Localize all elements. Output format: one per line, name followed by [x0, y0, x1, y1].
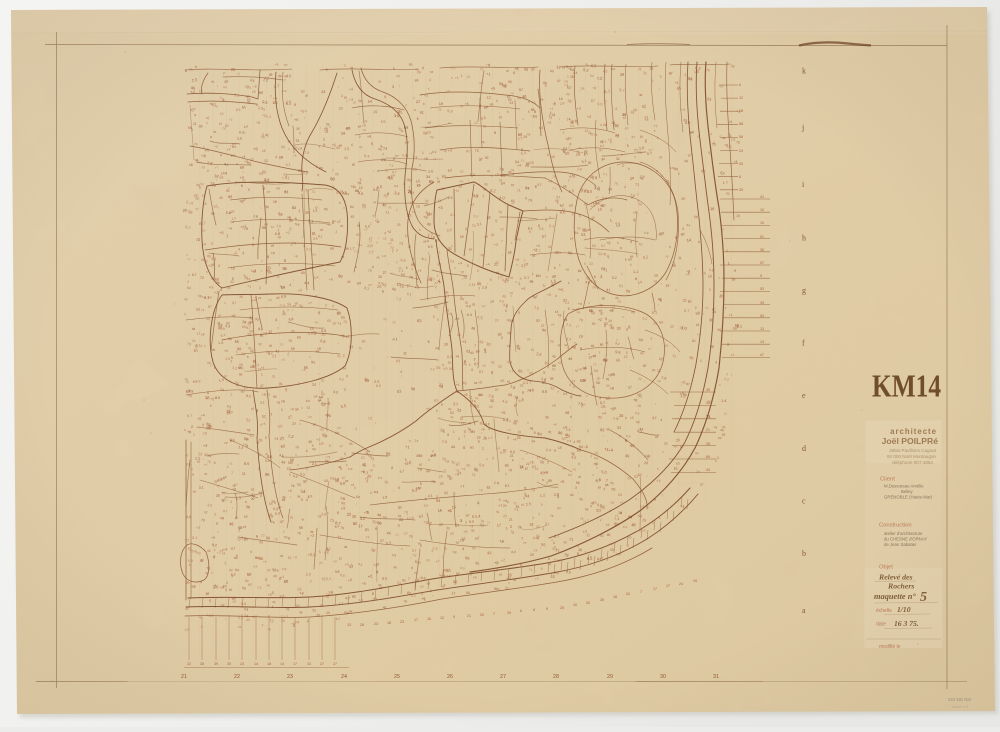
svg-text:4: 4 — [630, 240, 632, 244]
svg-text:47: 47 — [760, 353, 764, 357]
svg-text:17: 17 — [293, 662, 297, 666]
svg-text:14: 14 — [435, 346, 439, 350]
svg-text:3.2: 3.2 — [232, 366, 238, 371]
svg-text:6: 6 — [739, 83, 741, 87]
svg-text:23: 23 — [287, 674, 293, 680]
svg-text:+9: +9 — [494, 560, 499, 565]
svg-text:+6: +6 — [262, 393, 267, 397]
svg-text:12: 12 — [486, 95, 491, 100]
svg-text:36: 36 — [296, 127, 300, 131]
svg-text:36: 36 — [457, 333, 461, 337]
svg-text:41: 41 — [266, 264, 271, 270]
svg-text:70: 70 — [480, 519, 485, 524]
svg-text:9.7: 9.7 — [336, 617, 341, 621]
svg-text:88: 88 — [244, 515, 248, 519]
svg-text:53: 53 — [581, 232, 585, 237]
svg-text:1.0: 1.0 — [587, 190, 592, 194]
svg-text:+4: +4 — [594, 133, 598, 137]
svg-text:53: 53 — [760, 287, 764, 291]
svg-text:66: 66 — [407, 178, 412, 182]
svg-text:Construction: Construction — [879, 523, 912, 529]
svg-text:15: 15 — [316, 613, 320, 618]
svg-text:17: 17 — [358, 523, 363, 529]
svg-text:93: 93 — [344, 156, 348, 160]
svg-text:Belley: Belley — [901, 489, 914, 494]
svg-text:92: 92 — [485, 156, 489, 160]
svg-text:55: 55 — [477, 282, 481, 286]
svg-text:47: 47 — [280, 520, 284, 524]
svg-text:22: 22 — [234, 674, 240, 680]
svg-text:47: 47 — [382, 203, 387, 208]
svg-text:49: 49 — [479, 339, 484, 344]
svg-text:76: 76 — [517, 525, 522, 530]
svg-text:+4: +4 — [517, 163, 522, 168]
svg-text:95: 95 — [564, 343, 568, 347]
svg-text:16: 16 — [507, 344, 511, 348]
svg-text:+5: +5 — [287, 140, 291, 144]
svg-text:74: 74 — [514, 396, 519, 400]
svg-text:4: 4 — [343, 497, 345, 501]
svg-text:83: 83 — [555, 571, 559, 575]
svg-text:+6: +6 — [424, 157, 428, 161]
svg-text:2.7: 2.7 — [453, 402, 458, 407]
svg-text:19: 19 — [271, 251, 275, 255]
svg-text:+7: +7 — [185, 454, 189, 458]
svg-text:3.7: 3.7 — [537, 183, 542, 187]
svg-text:+1: +1 — [247, 277, 251, 281]
svg-text:3.4: 3.4 — [503, 303, 508, 307]
svg-text:22: 22 — [367, 244, 371, 248]
svg-text:60: 60 — [566, 92, 570, 96]
svg-text:M.Dessureau Amélie: M.Dessureau Amélie — [884, 484, 924, 489]
svg-text:65: 65 — [460, 235, 464, 239]
svg-text:27: 27 — [231, 210, 235, 214]
svg-text:+5: +5 — [288, 489, 292, 493]
svg-text:+9: +9 — [562, 467, 566, 471]
svg-text:de Jean Sabatier: de Jean Sabatier — [884, 542, 917, 547]
svg-text:+4: +4 — [485, 262, 490, 267]
svg-text:+3: +3 — [696, 332, 701, 337]
svg-text:46: 46 — [462, 380, 467, 386]
svg-text:66: 66 — [259, 172, 263, 176]
svg-text:79: 79 — [552, 175, 556, 179]
svg-text:72: 72 — [642, 529, 646, 533]
svg-text:58: 58 — [530, 161, 534, 165]
svg-text:20: 20 — [251, 497, 255, 501]
svg-text:3.3: 3.3 — [225, 324, 230, 329]
svg-text:+2: +2 — [609, 542, 613, 546]
svg-text:8.8: 8.8 — [306, 399, 311, 403]
svg-text:89: 89 — [548, 479, 552, 483]
svg-text:16: 16 — [570, 75, 574, 79]
svg-text:28: 28 — [553, 674, 559, 680]
svg-text:+8: +8 — [215, 479, 219, 483]
svg-text:+2: +2 — [216, 484, 220, 488]
svg-text:4: 4 — [230, 500, 232, 504]
svg-text:42: 42 — [359, 145, 363, 149]
svg-text:5.2: 5.2 — [597, 503, 602, 507]
svg-text:8.7: 8.7 — [647, 151, 652, 156]
svg-text:34: 34 — [205, 571, 209, 575]
svg-text:3: 3 — [726, 249, 728, 253]
svg-text:22: 22 — [655, 435, 659, 439]
svg-text:26: 26 — [305, 211, 310, 215]
svg-text:19: 19 — [373, 110, 378, 114]
svg-text:53: 53 — [638, 514, 642, 518]
svg-text:+5: +5 — [559, 287, 564, 292]
svg-text:70: 70 — [211, 80, 215, 84]
svg-text:1.8: 1.8 — [334, 477, 339, 481]
svg-text:43: 43 — [336, 146, 340, 150]
svg-text:8.5: 8.5 — [428, 245, 433, 249]
svg-text:84: 84 — [574, 231, 579, 235]
svg-text:30: 30 — [664, 442, 668, 446]
svg-text:47: 47 — [631, 135, 636, 140]
svg-text:+4: +4 — [521, 287, 526, 291]
svg-text:93: 93 — [297, 335, 302, 340]
svg-text:4.4: 4.4 — [304, 281, 310, 285]
svg-text:5.5: 5.5 — [381, 120, 386, 124]
svg-text:66: 66 — [605, 483, 609, 487]
svg-text:+5: +5 — [362, 582, 366, 586]
svg-text:71: 71 — [370, 456, 375, 461]
svg-text:43: 43 — [246, 618, 250, 622]
svg-text:12: 12 — [474, 121, 478, 125]
svg-text:+2: +2 — [232, 600, 236, 604]
svg-text:+7: +7 — [424, 94, 429, 98]
svg-text:9.1: 9.1 — [505, 483, 510, 488]
svg-text:79: 79 — [368, 269, 372, 273]
svg-text:5.3: 5.3 — [411, 594, 416, 598]
svg-text:47: 47 — [250, 158, 254, 162]
svg-text:15: 15 — [252, 90, 256, 94]
svg-text:84: 84 — [628, 515, 633, 520]
svg-text:4: 4 — [400, 370, 402, 374]
svg-text:83: 83 — [292, 206, 296, 210]
svg-text:34: 34 — [192, 327, 196, 331]
svg-text:2.1: 2.1 — [603, 172, 608, 176]
svg-text:86: 86 — [626, 289, 631, 294]
svg-text:7: 7 — [640, 590, 642, 594]
svg-text:18: 18 — [707, 274, 712, 279]
svg-text:9: 9 — [605, 317, 607, 321]
svg-text:6.7: 6.7 — [192, 273, 197, 277]
svg-text:72: 72 — [382, 283, 387, 288]
svg-text:60: 60 — [301, 271, 305, 275]
svg-text:68: 68 — [601, 267, 605, 271]
svg-text:9.6: 9.6 — [258, 327, 263, 331]
svg-text:37: 37 — [557, 79, 561, 83]
svg-text:2.9: 2.9 — [282, 89, 287, 93]
svg-text:97: 97 — [687, 153, 692, 158]
svg-text:8.1: 8.1 — [652, 310, 658, 315]
svg-text:78: 78 — [404, 510, 409, 515]
svg-text:35: 35 — [398, 127, 402, 131]
svg-text:3.5: 3.5 — [237, 136, 243, 141]
svg-text:43: 43 — [706, 468, 710, 472]
svg-text:3: 3 — [599, 396, 601, 400]
svg-text:48: 48 — [565, 411, 569, 415]
svg-text:49: 49 — [326, 611, 330, 615]
svg-text:18: 18 — [611, 121, 615, 125]
svg-text:+5: +5 — [213, 584, 217, 588]
svg-text:27: 27 — [500, 674, 506, 680]
svg-text:52: 52 — [641, 103, 646, 109]
svg-text:5.0: 5.0 — [479, 463, 485, 468]
svg-text:13: 13 — [696, 323, 700, 327]
svg-text:4.5: 4.5 — [267, 454, 273, 459]
svg-text:57: 57 — [465, 513, 470, 518]
svg-text:+7: +7 — [470, 203, 474, 207]
svg-text:9.6: 9.6 — [421, 576, 426, 580]
svg-text:49: 49 — [414, 571, 418, 575]
svg-text:1.2: 1.2 — [680, 393, 686, 398]
svg-text:4: 4 — [244, 224, 246, 228]
svg-text:61: 61 — [365, 528, 369, 532]
svg-text:21: 21 — [480, 67, 484, 71]
svg-text:14: 14 — [254, 662, 258, 666]
svg-text:35: 35 — [615, 124, 619, 128]
svg-text:34: 34 — [617, 426, 621, 430]
svg-text:43: 43 — [349, 564, 354, 569]
svg-text:10: 10 — [578, 548, 582, 552]
svg-text:2.5: 2.5 — [566, 570, 571, 574]
svg-text:1.1: 1.1 — [393, 337, 398, 341]
svg-text:19: 19 — [736, 214, 740, 218]
svg-text:48: 48 — [516, 344, 520, 348]
svg-text:+1: +1 — [326, 222, 330, 226]
svg-text:93: 93 — [430, 70, 434, 74]
svg-text:2.9: 2.9 — [305, 572, 311, 577]
svg-text:+1: +1 — [705, 306, 709, 310]
svg-text:1: 1 — [222, 98, 224, 102]
svg-text:3.6: 3.6 — [428, 169, 434, 174]
svg-text:22: 22 — [457, 408, 462, 413]
svg-text:+3: +3 — [557, 343, 561, 347]
svg-text:+1: +1 — [605, 341, 609, 345]
svg-text:2.1: 2.1 — [308, 219, 314, 224]
svg-text:88: 88 — [455, 523, 460, 528]
svg-text:29: 29 — [607, 674, 613, 680]
svg-text:9.4: 9.4 — [394, 184, 399, 188]
svg-text:59: 59 — [344, 611, 349, 616]
svg-text:97: 97 — [449, 477, 453, 481]
svg-text:6: 6 — [548, 557, 550, 561]
svg-text:42: 42 — [498, 364, 503, 369]
svg-text:36: 36 — [239, 295, 243, 299]
svg-text:+2: +2 — [412, 210, 416, 214]
svg-text:20: 20 — [219, 196, 223, 200]
svg-text:20: 20 — [291, 329, 295, 333]
svg-text:1.7: 1.7 — [445, 294, 450, 299]
svg-text:38: 38 — [706, 442, 710, 446]
svg-text:+9: +9 — [508, 468, 512, 472]
svg-text:81: 81 — [479, 370, 483, 374]
svg-text:1.1: 1.1 — [633, 270, 638, 274]
svg-text:81: 81 — [522, 94, 527, 99]
svg-text:67: 67 — [675, 236, 679, 240]
svg-text:86: 86 — [228, 195, 233, 199]
svg-text:51: 51 — [619, 284, 623, 288]
svg-text:30: 30 — [660, 674, 666, 680]
svg-text:5.9: 5.9 — [241, 602, 246, 606]
svg-text:18: 18 — [517, 430, 522, 435]
svg-text:8.7: 8.7 — [223, 509, 228, 513]
svg-text:33: 33 — [280, 554, 284, 558]
svg-text:+1: +1 — [620, 501, 624, 505]
svg-text:17: 17 — [557, 558, 562, 563]
svg-text:+4: +4 — [515, 258, 519, 262]
svg-text:9.8: 9.8 — [709, 268, 714, 272]
svg-text:79: 79 — [418, 468, 422, 472]
svg-text:+1: +1 — [358, 346, 362, 350]
svg-text:GRENOBLE (Haute-Mar): GRENOBLE (Haute-Mar) — [884, 495, 933, 500]
svg-text:77: 77 — [185, 539, 190, 543]
svg-text:94: 94 — [325, 459, 329, 463]
svg-text:+6: +6 — [443, 568, 448, 572]
svg-text:83: 83 — [591, 344, 595, 348]
svg-text:2.5: 2.5 — [448, 196, 453, 200]
svg-text:1.5: 1.5 — [539, 126, 544, 130]
svg-text:1.7: 1.7 — [488, 436, 493, 440]
svg-text:12: 12 — [258, 342, 262, 346]
svg-text:+2: +2 — [387, 230, 391, 234]
svg-text:80: 80 — [474, 467, 478, 471]
svg-text:92 000 Noël Montaugon: 92 000 Noël Montaugon — [887, 454, 936, 459]
svg-text:+4: +4 — [418, 269, 422, 273]
svg-text:1.7: 1.7 — [339, 601, 344, 606]
svg-text:15: 15 — [597, 207, 602, 212]
svg-text:+8: +8 — [187, 430, 191, 434]
svg-text:+7: +7 — [364, 228, 368, 232]
svg-text:42: 42 — [474, 404, 479, 409]
svg-text:29: 29 — [490, 300, 494, 304]
svg-text:Relevé des: Relevé des — [878, 573, 913, 582]
svg-text:8: 8 — [557, 494, 559, 499]
svg-text:94: 94 — [628, 258, 632, 262]
svg-text:83: 83 — [570, 493, 574, 497]
svg-text:+3: +3 — [532, 295, 537, 300]
svg-text:12: 12 — [556, 65, 561, 70]
svg-text:16: 16 — [427, 617, 431, 621]
svg-text:83: 83 — [618, 493, 622, 497]
svg-text:1: 1 — [335, 230, 337, 234]
svg-text:16: 16 — [438, 509, 442, 513]
svg-text:56: 56 — [358, 99, 362, 103]
svg-text:51: 51 — [760, 235, 764, 239]
svg-text:+2: +2 — [479, 81, 483, 85]
svg-text:8.6: 8.6 — [645, 454, 650, 458]
svg-text:71: 71 — [672, 354, 677, 359]
svg-text:71: 71 — [276, 275, 280, 279]
svg-text:32: 32 — [616, 157, 620, 161]
svg-text:93: 93 — [397, 581, 402, 586]
svg-text:55: 55 — [408, 62, 413, 67]
svg-text:32: 32 — [487, 215, 491, 220]
svg-text:78: 78 — [530, 460, 535, 465]
svg-text:16: 16 — [359, 186, 363, 190]
svg-text:9.7: 9.7 — [619, 87, 625, 93]
svg-text:7: 7 — [645, 139, 647, 143]
svg-text:+4: +4 — [587, 115, 591, 119]
svg-text:+3: +3 — [196, 526, 200, 530]
svg-text:96: 96 — [444, 491, 449, 495]
svg-text:du CHESNE d'ORNAY: du CHESNE d'ORNAY — [884, 537, 927, 542]
svg-text:+3: +3 — [395, 533, 399, 537]
svg-text:22: 22 — [187, 662, 191, 666]
svg-text:4: 4 — [577, 150, 579, 154]
svg-text:+4: +4 — [448, 149, 452, 153]
svg-text:9.5: 9.5 — [262, 99, 268, 105]
svg-text:1: 1 — [458, 437, 460, 441]
svg-text:1: 1 — [281, 408, 283, 412]
svg-text:+4: +4 — [309, 266, 313, 270]
svg-text:18: 18 — [710, 206, 715, 211]
svg-text:50: 50 — [540, 460, 545, 465]
svg-text:64: 64 — [689, 130, 694, 135]
svg-text:86: 86 — [558, 430, 563, 435]
svg-text:+1: +1 — [590, 217, 595, 222]
svg-text:2.7: 2.7 — [342, 191, 347, 195]
svg-text:20: 20 — [503, 504, 507, 508]
svg-text:9: 9 — [212, 262, 214, 267]
svg-text:16 3 75.: 16 3 75. — [894, 619, 919, 628]
svg-text:72: 72 — [201, 258, 205, 262]
svg-text:+2: +2 — [460, 270, 464, 274]
svg-text:3.1: 3.1 — [192, 535, 198, 540]
svg-text:9: 9 — [625, 438, 627, 443]
svg-text:84: 84 — [259, 91, 263, 95]
svg-text:18: 18 — [341, 255, 345, 259]
svg-text:4: 4 — [471, 368, 473, 372]
svg-text:43: 43 — [487, 550, 492, 555]
svg-text:9.6: 9.6 — [563, 392, 568, 396]
svg-text:3.3: 3.3 — [363, 470, 369, 475]
svg-text:10: 10 — [458, 184, 463, 189]
svg-text:1.5: 1.5 — [344, 147, 349, 151]
svg-text:24: 24 — [268, 298, 272, 302]
svg-text:+3: +3 — [188, 201, 193, 206]
svg-text:+3: +3 — [576, 106, 581, 111]
svg-text:8: 8 — [294, 103, 296, 107]
svg-text:20: 20 — [339, 106, 344, 111]
svg-text:2: 2 — [262, 132, 264, 137]
svg-text:7: 7 — [270, 95, 272, 99]
svg-text:2.1: 2.1 — [600, 144, 605, 148]
svg-text:2: 2 — [482, 447, 485, 451]
svg-text:97: 97 — [668, 71, 673, 76]
svg-text:1.5: 1.5 — [694, 70, 699, 74]
svg-text:6.9: 6.9 — [432, 150, 437, 154]
svg-text:e: e — [802, 391, 806, 400]
svg-text:55: 55 — [321, 379, 325, 383]
svg-text:20: 20 — [426, 469, 431, 473]
svg-text:12: 12 — [264, 159, 268, 163]
svg-text:57: 57 — [760, 261, 764, 265]
svg-text:19: 19 — [693, 579, 697, 583]
svg-text:43: 43 — [589, 262, 593, 266]
svg-text:+5: +5 — [262, 422, 266, 426]
svg-text:9: 9 — [256, 103, 258, 107]
svg-text:97: 97 — [711, 307, 716, 312]
svg-text:6: 6 — [463, 445, 465, 450]
svg-text:77: 77 — [495, 319, 499, 323]
svg-text:4: 4 — [682, 227, 684, 231]
svg-text:35: 35 — [436, 365, 441, 370]
svg-text:d: d — [802, 444, 806, 453]
svg-text:70: 70 — [409, 535, 413, 539]
svg-text:95: 95 — [191, 86, 196, 91]
